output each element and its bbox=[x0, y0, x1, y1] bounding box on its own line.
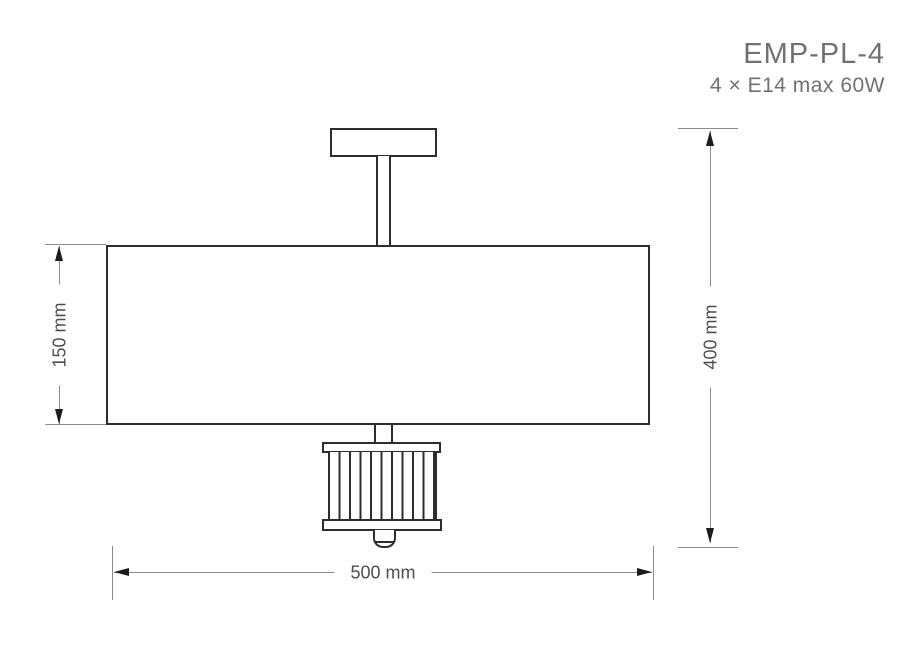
dim400-label: 400 mm bbox=[699, 286, 724, 387]
dim150-label: 150 mm bbox=[48, 284, 73, 385]
dim400-extension-top bbox=[678, 128, 738, 129]
dim400-arrow-down-icon bbox=[706, 528, 714, 543]
dim500-extension-right bbox=[653, 546, 654, 600]
product-bulb-spec: 4 × E14 max 60W bbox=[710, 73, 885, 99]
product-model: EMP-PL-4 bbox=[710, 38, 885, 70]
lower-stem-shape bbox=[374, 425, 393, 443]
dim150-extension-top bbox=[45, 244, 106, 245]
dim500-extension-left bbox=[112, 546, 113, 600]
product-header: EMP-PL-4 4 × E14 max 60W bbox=[710, 38, 885, 99]
ribbed-glass-diffuser-shape bbox=[328, 452, 437, 520]
dim150-arrow-up-icon bbox=[55, 246, 63, 261]
finial-detail-line bbox=[375, 541, 394, 543]
dim150-arrow-down-icon bbox=[55, 409, 63, 424]
dim400-arrow-up-icon bbox=[706, 131, 714, 146]
dim500-arrow-right-icon bbox=[637, 568, 652, 576]
dim500-arrow-left-icon bbox=[114, 568, 129, 576]
lamp-shade-shape bbox=[106, 245, 650, 425]
dim400-extension-bottom bbox=[678, 547, 738, 548]
finial-knob-shape bbox=[373, 530, 396, 548]
dim150-extension-bottom bbox=[45, 424, 106, 425]
ceiling-canopy-shape bbox=[330, 128, 437, 157]
technical-drawing-page: EMP-PL-4 4 × E14 max 60W 150 mm 400 mm 5… bbox=[0, 0, 924, 649]
dim500-label: 500 mm bbox=[334, 561, 431, 586]
upper-stem-shape bbox=[376, 156, 391, 246]
